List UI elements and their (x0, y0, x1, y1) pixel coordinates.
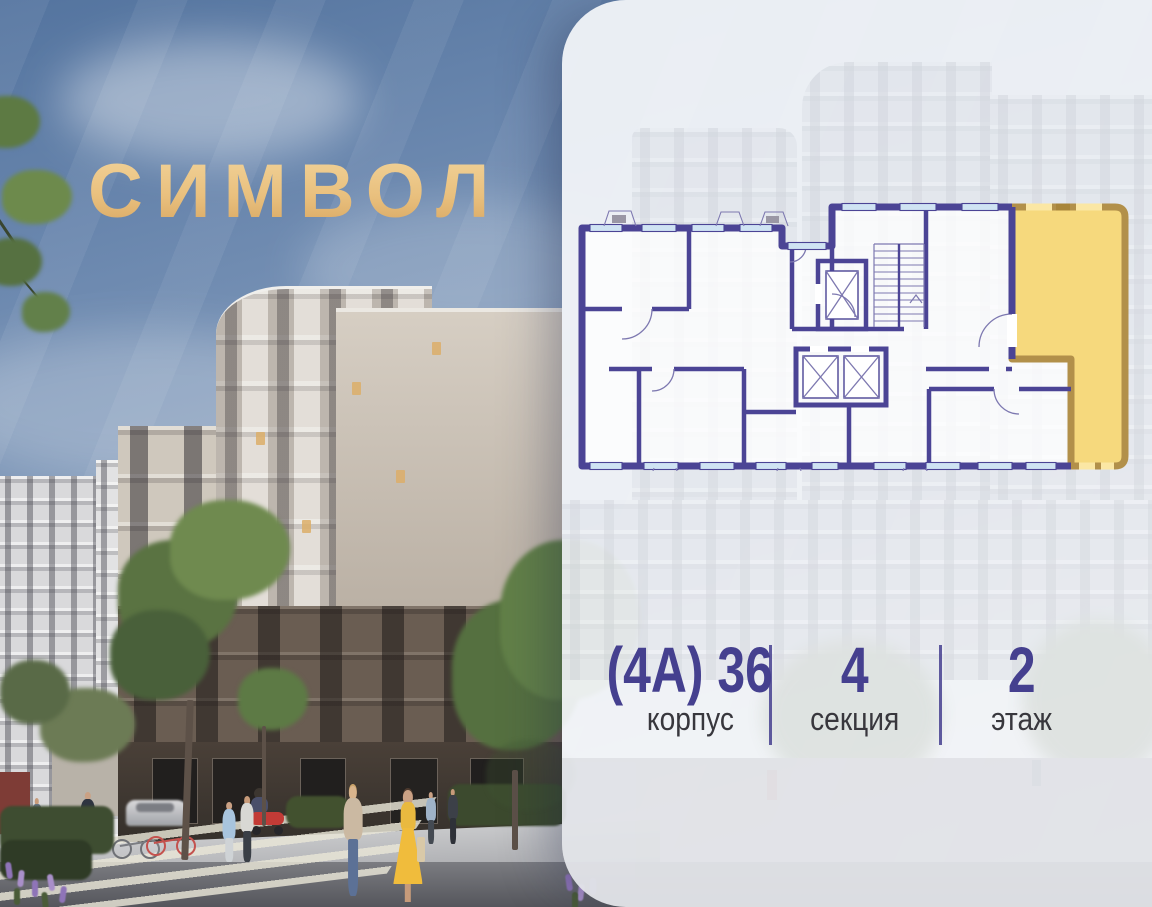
section-info: 4 секция (777, 640, 933, 736)
lit-window (396, 470, 405, 483)
tree-trunk (512, 770, 518, 850)
project-logo: СИМВОЛ (88, 148, 502, 235)
window (1101, 463, 1114, 470)
building-value: (4А) 36 (582, 640, 798, 700)
bicycle (146, 823, 200, 861)
cloud (60, 40, 360, 160)
person (392, 790, 424, 902)
window (1076, 204, 1102, 211)
person (446, 789, 460, 844)
scooter (250, 788, 290, 840)
car-windows (136, 803, 174, 812)
window (1079, 463, 1095, 470)
building-label: корпус (582, 702, 798, 736)
person (238, 796, 256, 862)
hedge (0, 840, 92, 880)
floor-label: этаж (937, 702, 1107, 736)
lit-window (352, 382, 361, 395)
tree-trunk (262, 726, 266, 826)
window (1026, 204, 1052, 211)
floor-plan (574, 199, 1134, 471)
lit-window (256, 432, 265, 445)
door-opening (1007, 314, 1017, 347)
building-info: (4А) 36 корпус (582, 640, 798, 736)
section-label: секция (777, 702, 933, 736)
section-value: 4 (777, 640, 933, 700)
lit-window (302, 520, 311, 533)
floor-info: 2 этаж (937, 640, 1107, 736)
person (424, 792, 438, 844)
apartment-card: СИМВОЛ (0, 0, 1152, 907)
floor-value: 2 (937, 640, 1107, 700)
wall-pier (1056, 204, 1070, 211)
lit-window (432, 342, 441, 355)
apartment-info-row: (4А) 36 корпус 4 секция 2 этаж (562, 640, 1152, 760)
person (220, 802, 238, 862)
person (340, 786, 366, 896)
divider (769, 645, 772, 745)
details-panel: (4А) 36 корпус 4 секция 2 этаж (562, 0, 1152, 907)
